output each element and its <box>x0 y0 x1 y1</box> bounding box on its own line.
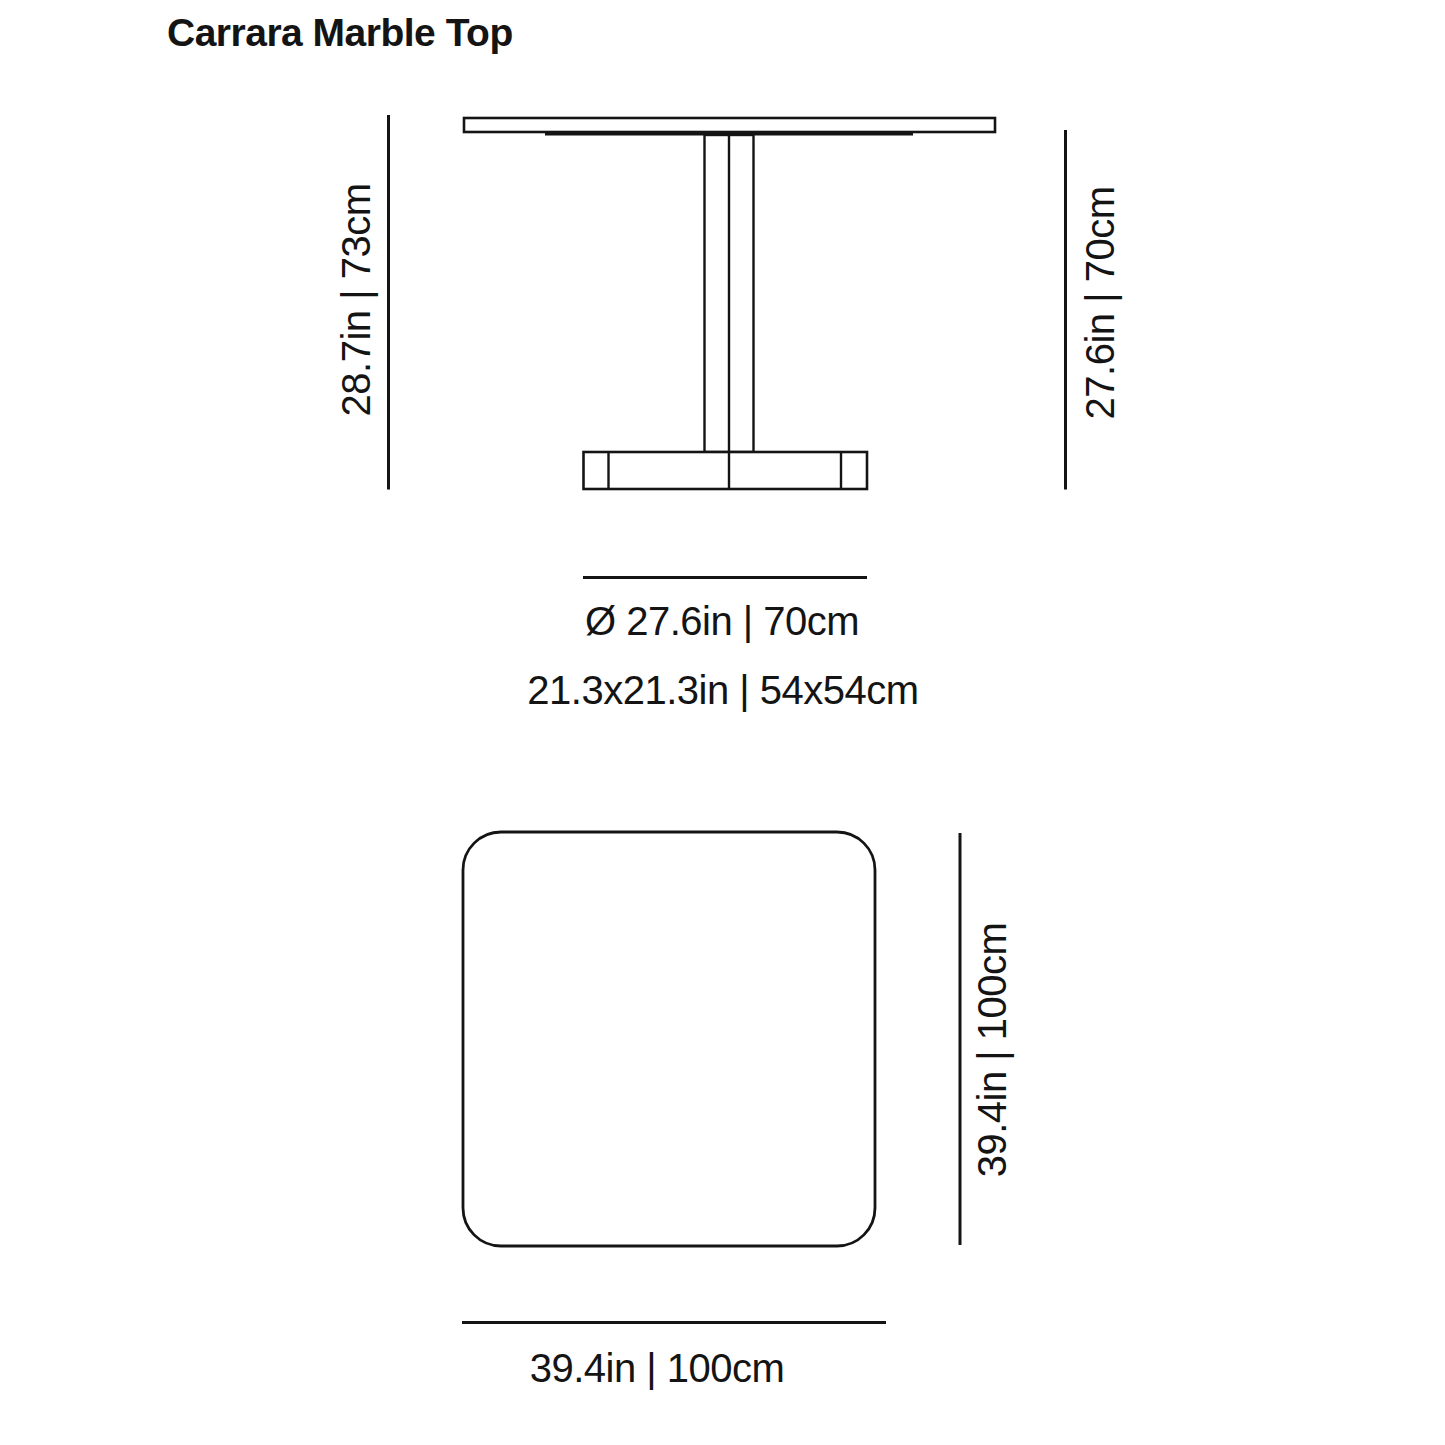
dim-label-height-total: 28.7in | 73cm <box>336 184 376 417</box>
dim-label-height-underside: 27.6in | 70cm <box>1080 187 1120 420</box>
elevation-view-drawing <box>464 118 995 489</box>
dimension-diagram: Carrara Marble Top 28.7in | 73cm 27.6in … <box>0 0 1445 1445</box>
dim-label-top-diameter: Ø 27.6in | 70cm <box>585 601 859 641</box>
dim-label-plan-width: 39.4in | 100cm <box>530 1348 785 1388</box>
dim-label-base-footprint: 21.3x21.3in | 54x54cm <box>527 670 918 710</box>
table-linework <box>0 0 1445 1445</box>
tabletop-shape <box>464 118 995 132</box>
dim-label-plan-depth: 39.4in | 100cm <box>972 923 1012 1178</box>
base-shape <box>584 452 868 489</box>
tabletop-plan-shape <box>463 832 875 1246</box>
top-view-drawing <box>463 832 875 1246</box>
